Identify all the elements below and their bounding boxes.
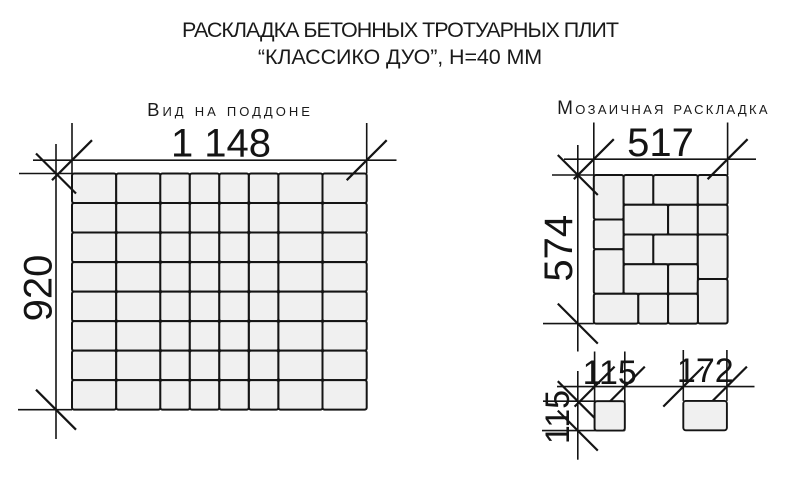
svg-text:517: 517 [627,121,694,165]
svg-text:115: 115 [583,354,637,392]
svg-text:574: 574 [537,215,581,282]
svg-text:920: 920 [17,255,61,322]
svg-text:115: 115 [539,390,577,444]
svg-text:1 148: 1 148 [171,122,271,166]
svg-text:172: 172 [677,352,734,390]
